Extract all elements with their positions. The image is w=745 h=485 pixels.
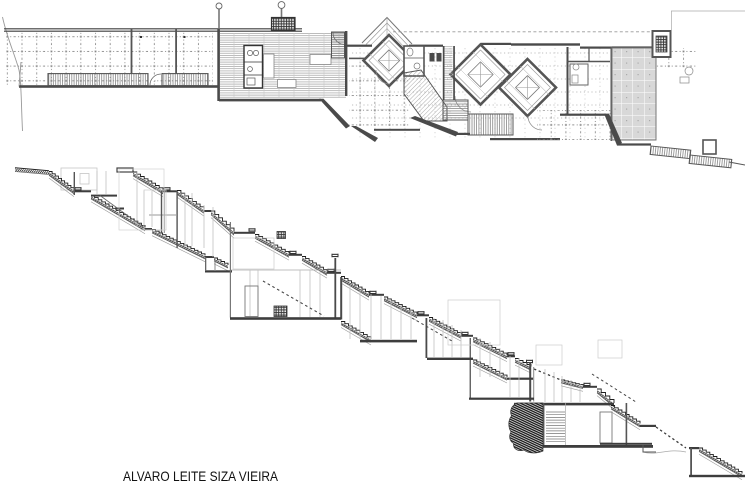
svg-text:ALVARO LEITE SIZA VIEIRA: ALVARO LEITE SIZA VIEIRA xyxy=(123,468,279,484)
